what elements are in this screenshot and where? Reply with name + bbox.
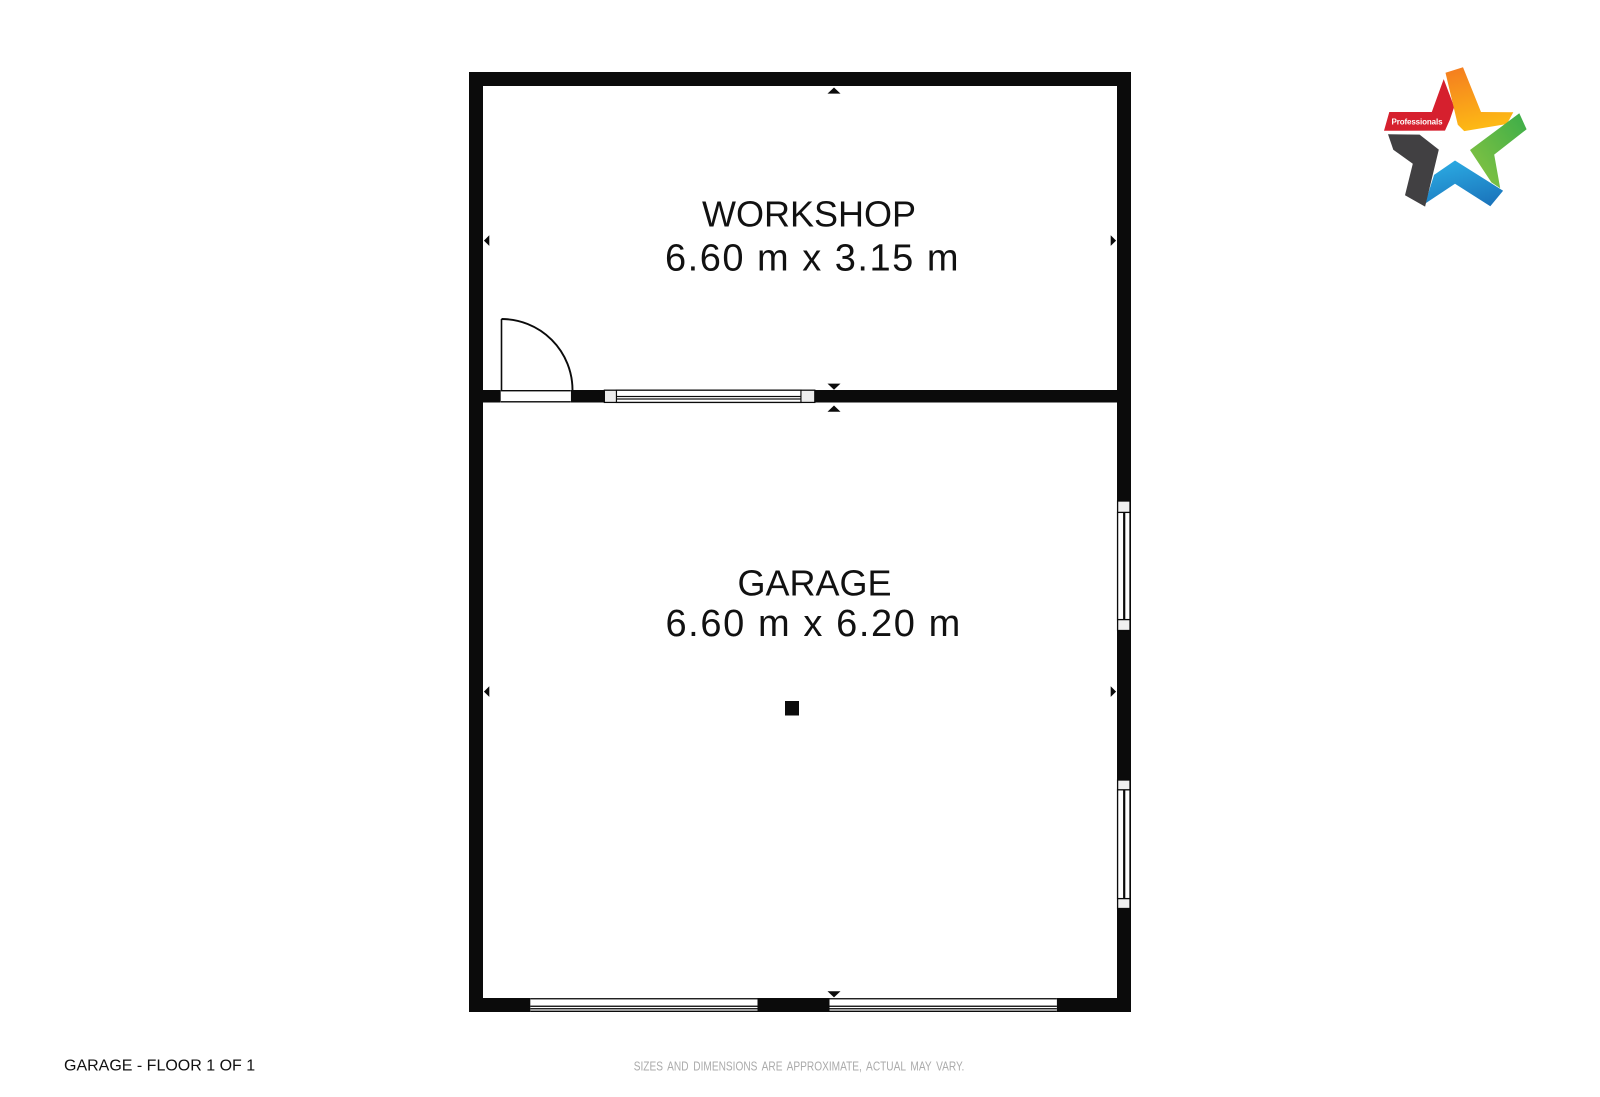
svg-text:GARAGE: GARAGE xyxy=(737,562,891,603)
svg-text:SIZES AND DIMENSIONS ARE APPRO: SIZES AND DIMENSIONS ARE APPROXIMATE, AC… xyxy=(634,1059,965,1073)
svg-text:6.60 m x 3.15 m: 6.60 m x 3.15 m xyxy=(665,238,960,280)
svg-text:6.60 m x 6.20 m: 6.60 m x 6.20 m xyxy=(665,603,961,645)
svg-text:Professionals: Professionals xyxy=(1392,118,1444,127)
svg-text:WORKSHOP: WORKSHOP xyxy=(702,193,916,234)
svg-text:GARAGE - FLOOR 1 OF 1: GARAGE - FLOOR 1 OF 1 xyxy=(64,1057,255,1074)
